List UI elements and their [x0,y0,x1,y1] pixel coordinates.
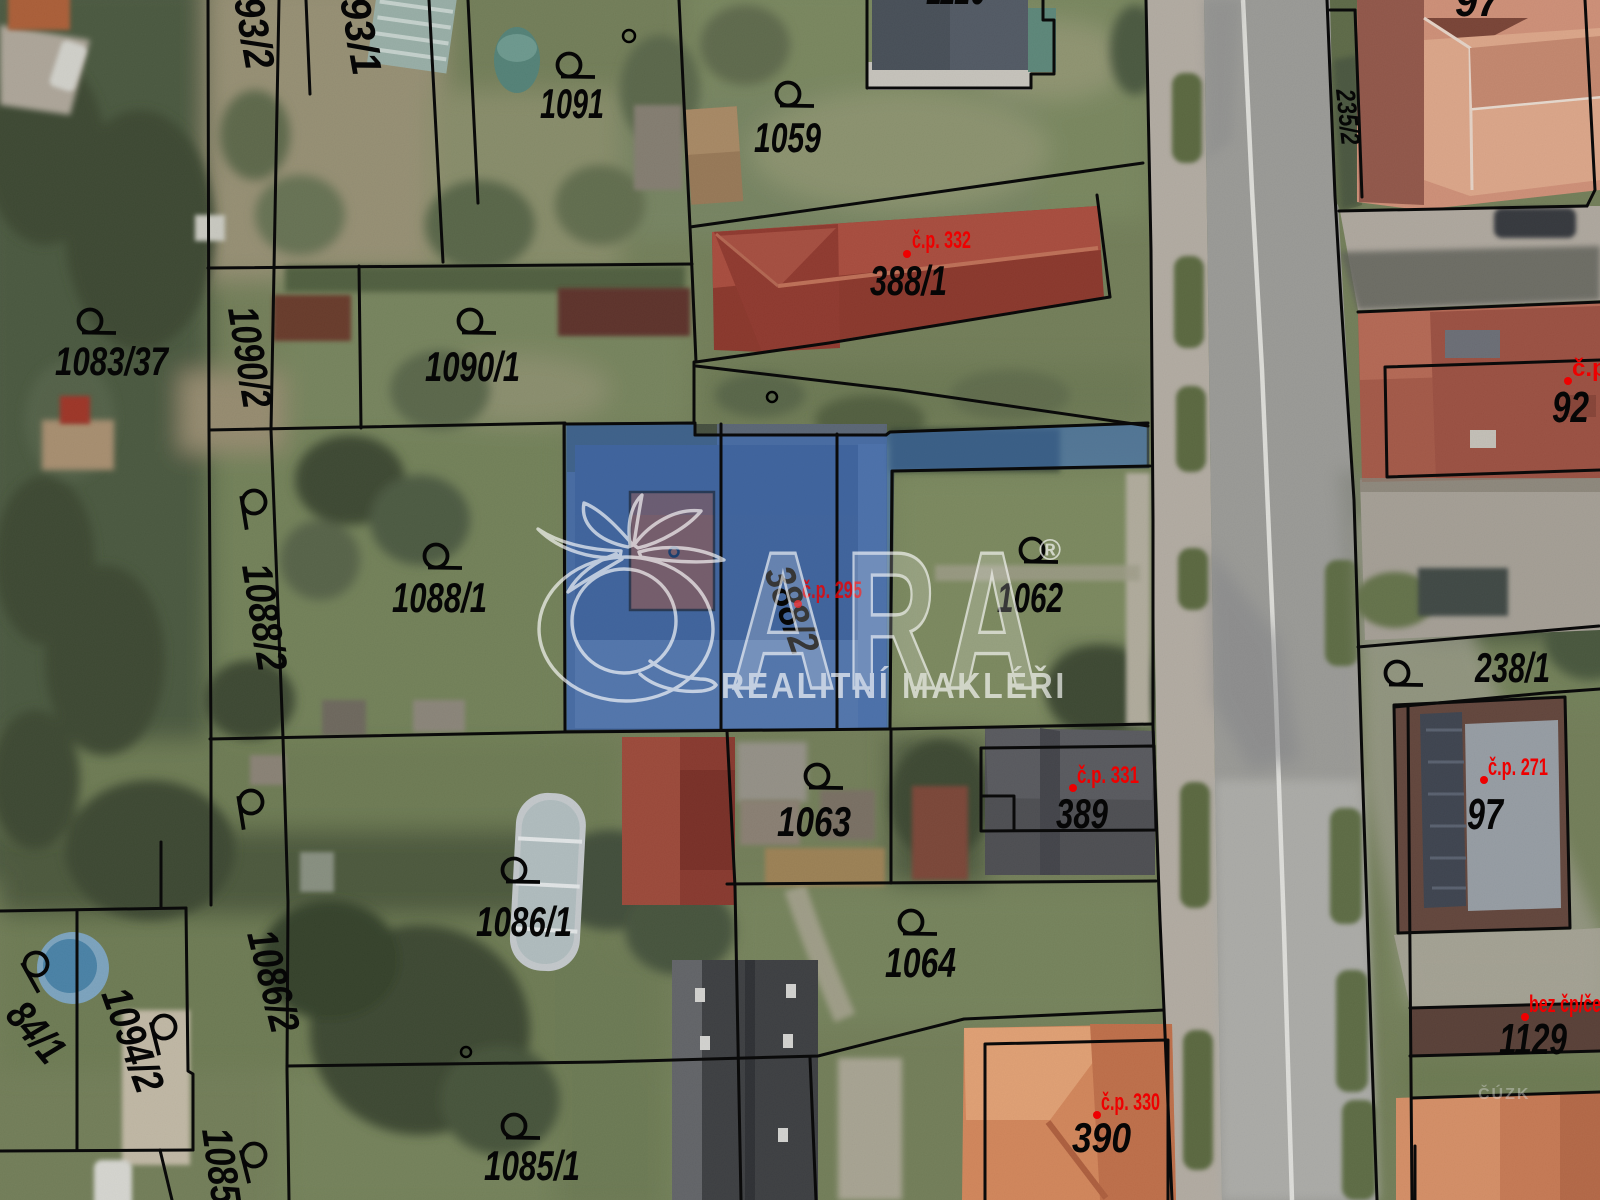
svg-text:97: 97 [1467,790,1505,839]
svg-text:1085/1: 1085/1 [484,1142,580,1189]
svg-text:1090/1: 1090/1 [425,343,520,390]
svg-text:388/1: 388/1 [870,257,947,304]
svg-text:1083/37: 1083/37 [55,340,169,384]
svg-text:1091: 1091 [540,80,604,127]
svg-text:č.p. 9: č.p. 9 [1572,355,1600,382]
svg-text:č.p. 330: č.p. 330 [1101,1089,1160,1116]
svg-text:1059: 1059 [754,114,821,161]
svg-text:ČÚZK: ČÚZK [1478,1084,1530,1103]
svg-text:1063: 1063 [777,798,851,845]
svg-text:1086/1: 1086/1 [476,898,572,945]
svg-text:č.p. 332: č.p. 332 [912,227,971,254]
svg-text:92: 92 [1552,383,1589,432]
svg-text:č.p. 331: č.p. 331 [1077,762,1139,789]
svg-text:1085: 1085 [193,1125,250,1200]
svg-text:97: 97 [1455,0,1502,26]
svg-text:235/2: 235/2 [1330,87,1366,147]
svg-text:bez čp/če: bez čp/če [1529,991,1600,1018]
svg-text:®: ® [1039,534,1061,567]
svg-text:1088/1: 1088/1 [392,574,487,621]
svg-text:1064: 1064 [885,939,956,986]
svg-text:REALITNÍ MAKLÉŘI: REALITNÍ MAKLÉŘI [721,664,1067,706]
svg-text:1120: 1120 [926,0,986,13]
svg-text:238/1: 238/1 [1474,644,1550,691]
svg-text:1129: 1129 [1499,1015,1567,1064]
svg-text:389: 389 [1056,790,1108,837]
svg-text:č.p. 271: č.p. 271 [1488,754,1548,781]
svg-text:390: 390 [1072,1114,1131,1161]
